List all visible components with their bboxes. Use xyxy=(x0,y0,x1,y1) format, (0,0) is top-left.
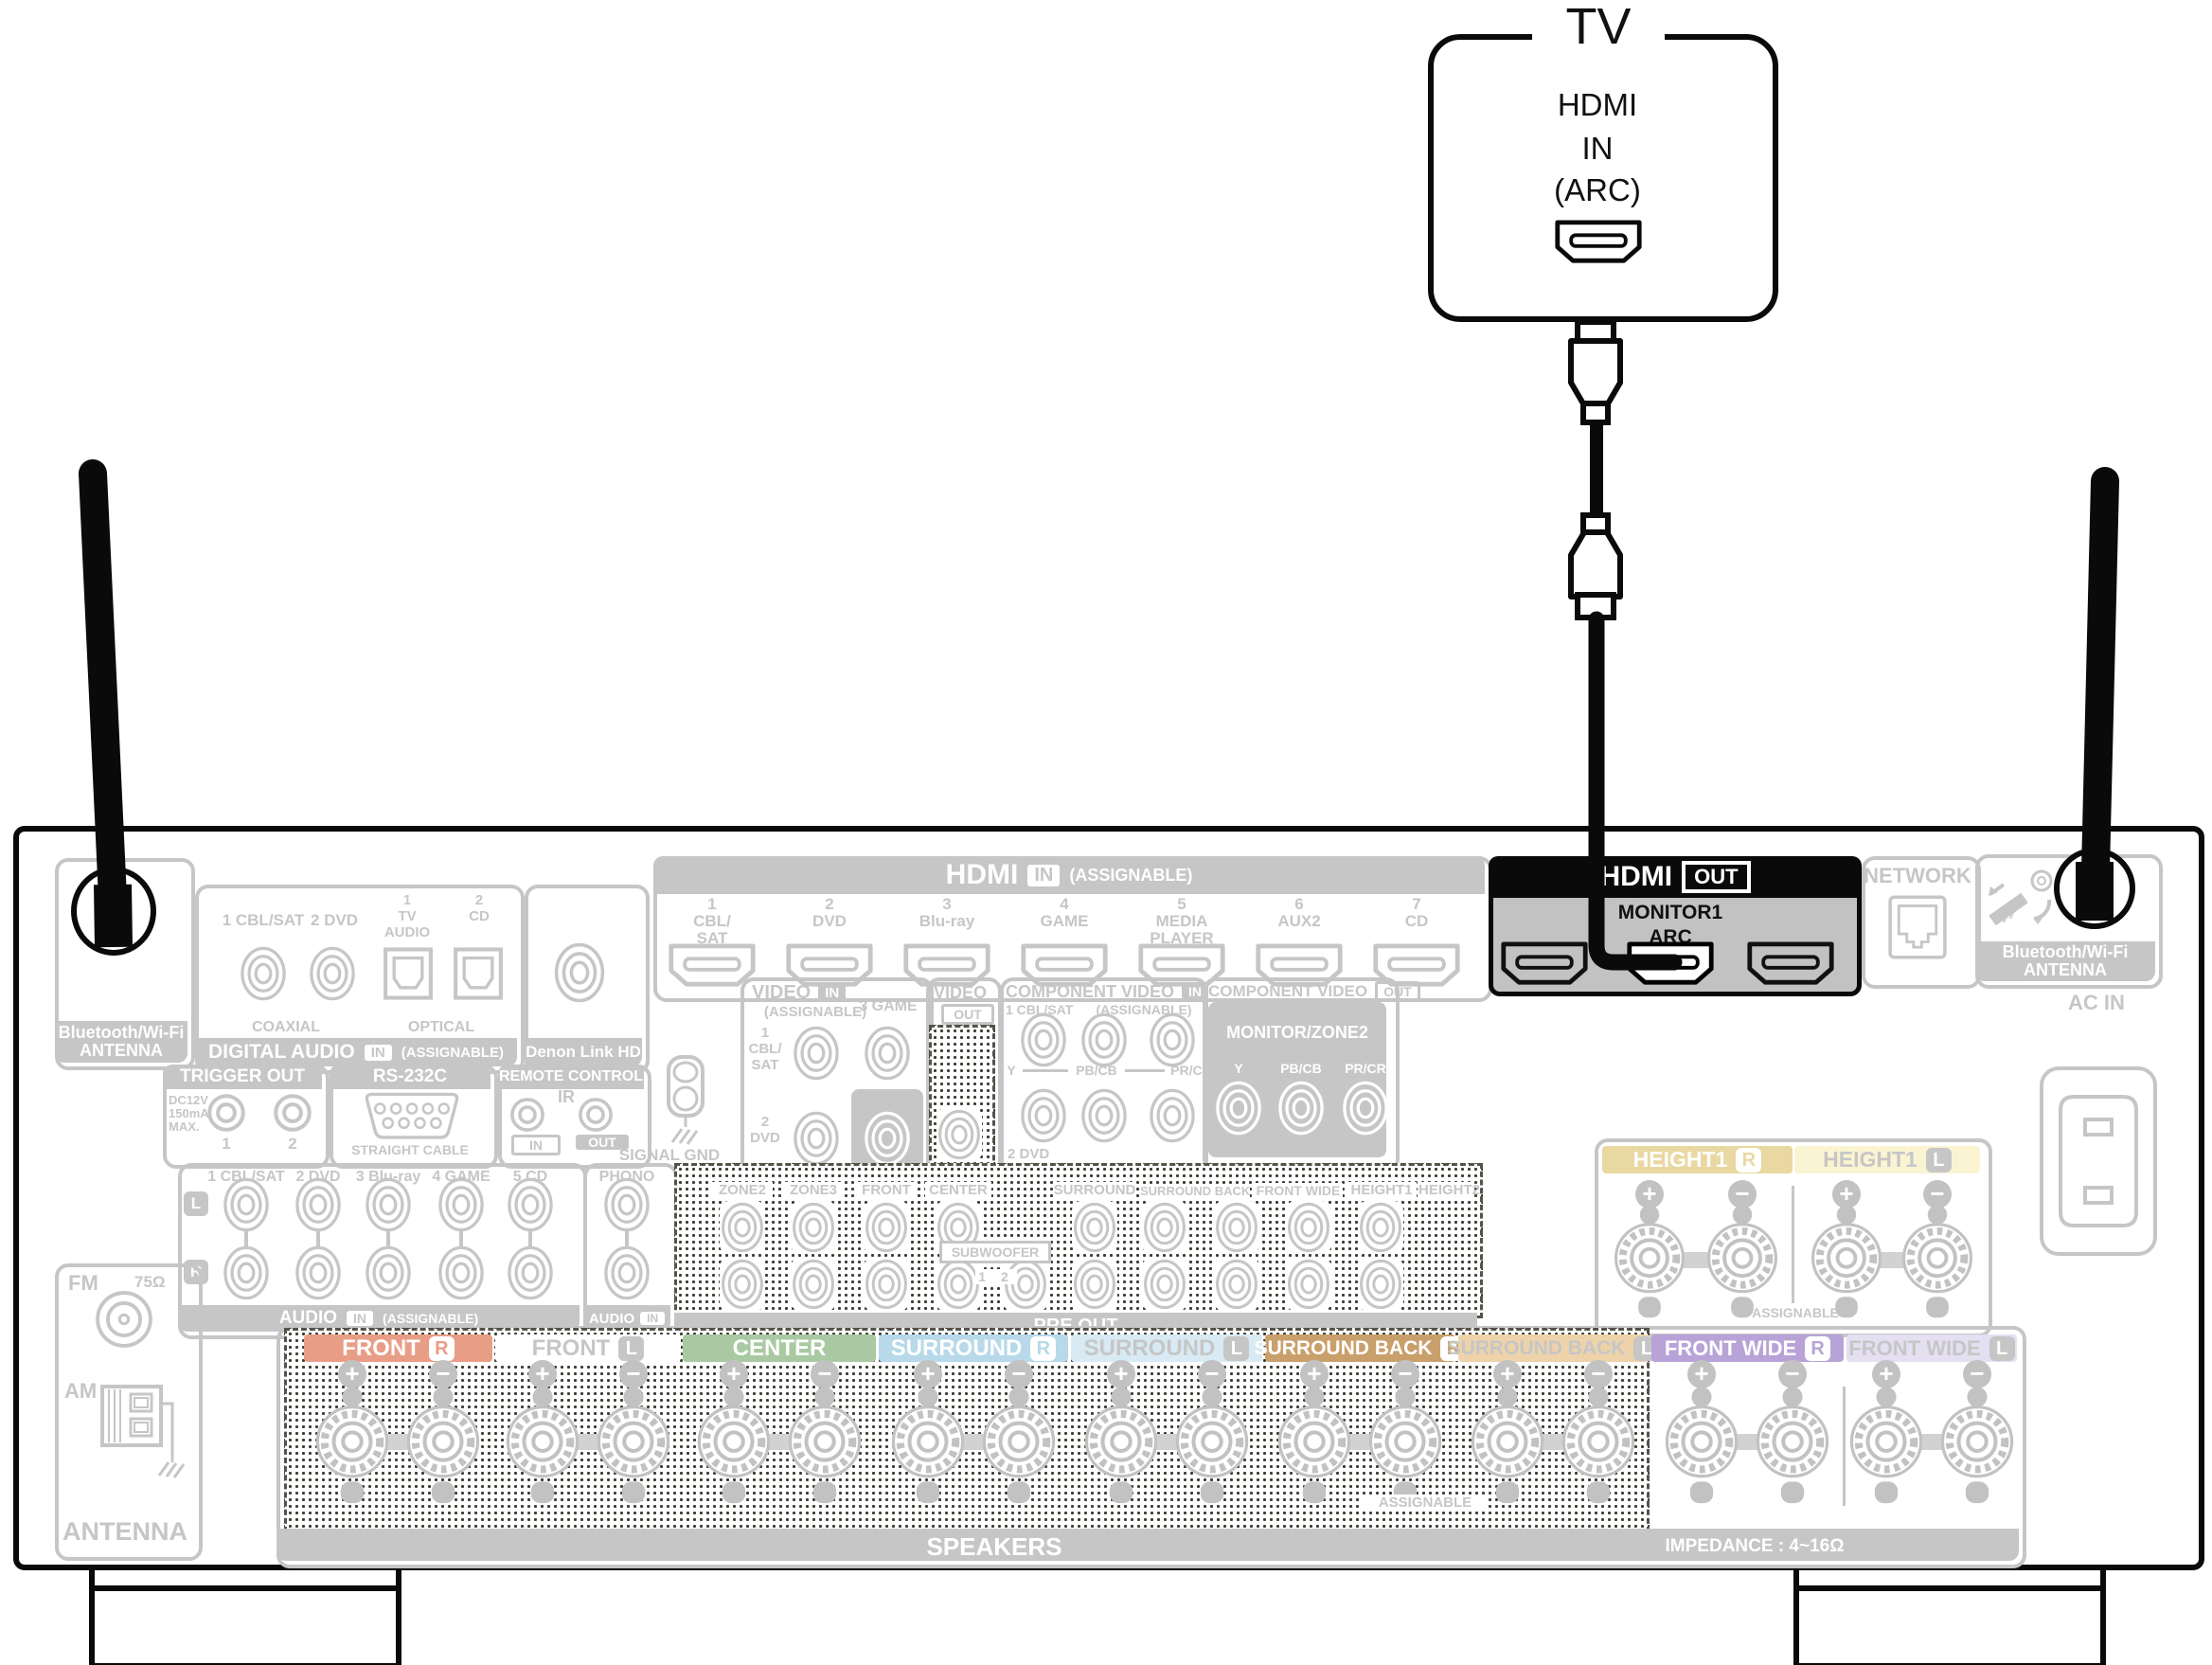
speaker-header-center: CENTER xyxy=(683,1334,876,1362)
bt-antenna-right-label: Bluetooth/Wi-Fi ANTENNA xyxy=(1975,941,2155,981)
audio-r-jack-3 xyxy=(364,1244,413,1301)
hdmi-out-badge: OUT xyxy=(1682,861,1750,893)
height1-r-label: HEIGHT1 xyxy=(1633,1147,1728,1173)
front-r-label: FRONT xyxy=(342,1335,420,1362)
video-dvd-label: 2 DVD xyxy=(740,1114,790,1146)
component-out-monitor-label: MONITOR/ZONE2 xyxy=(1212,1023,1382,1043)
optical-jack-tv-audio xyxy=(383,947,434,1000)
audio-r-jack-2 xyxy=(294,1244,343,1301)
coaxial-jack-dvd xyxy=(308,945,357,1002)
optical1-num: 1 xyxy=(381,892,434,908)
denon-link-jack xyxy=(552,941,607,1004)
video-jack-cbl-sat xyxy=(792,1025,841,1082)
hdmi-in-port3-label: 3 Blu-ray xyxy=(895,896,999,930)
hdmi-in-header: HDMI IN (ASSIGNABLE) xyxy=(653,856,1485,894)
height1-assignable: ASSIGNABLE xyxy=(1739,1305,1852,1320)
hdmi-in-port4-label: 4 GAME xyxy=(1012,896,1116,930)
video-j2-name: DVD xyxy=(740,1130,790,1146)
hdmi-out-monitor1-label: MONITOR1 xyxy=(1595,902,1746,924)
surround-back-r-post-minus xyxy=(1367,1385,1443,1508)
speaker-header-front-wide-r: FRONT WIDE R xyxy=(1651,1334,1844,1362)
rs232c-title: RS-232C xyxy=(373,1066,447,1087)
preout-jack-sw2 xyxy=(1003,1258,1048,1311)
height1-r-header: HEIGHT1 R xyxy=(1602,1146,1793,1173)
preout-jack-b5 xyxy=(1072,1258,1117,1311)
hdmi5-name1: MEDIA xyxy=(1130,913,1234,930)
front-r-post-plus xyxy=(314,1385,390,1508)
optical-jack-cd xyxy=(453,947,504,1000)
coaxial-jack-cbl-sat xyxy=(239,945,288,1002)
component-in-pr-2 xyxy=(1148,1087,1197,1144)
remote-in-jack xyxy=(509,1097,545,1133)
component-in-dash1 xyxy=(1023,1069,1068,1072)
receiver-foot-right xyxy=(1793,1565,2106,1665)
trigger-out-title: TRIGGER OUT xyxy=(180,1066,305,1087)
preout-jack-b1 xyxy=(720,1258,765,1311)
bt-antenna-left-line2: ANTENNA xyxy=(80,1042,163,1060)
optical1-line1: TV xyxy=(381,908,434,924)
rs232c-note: STRAIGHT CABLE xyxy=(335,1142,485,1157)
audio-l-jack-3 xyxy=(364,1176,413,1233)
speaker-header-surround-back-l: SURROUND BACK L xyxy=(1458,1334,1649,1362)
front-wide-r-label: FRONT WIDE xyxy=(1665,1336,1796,1361)
bt-antenna-right-line1: Bluetooth/Wi-Fi xyxy=(2003,943,2129,961)
am-terminal xyxy=(100,1381,187,1479)
hdmi-in-port1-label: 1 CBL/ SAT xyxy=(660,896,764,947)
receiver-foot-right-band xyxy=(1799,1585,2100,1591)
preout-jack-t7 xyxy=(1214,1201,1259,1254)
height1-r-post-plus xyxy=(1612,1203,1687,1322)
coaxial-label: COAXIAL xyxy=(231,1019,341,1036)
video-jack-monitor xyxy=(863,1110,912,1167)
remote-in-badge: IN xyxy=(511,1135,561,1155)
rs232c-header: RS-232C xyxy=(330,1065,491,1089)
optical1-line2: AUDIO xyxy=(381,924,434,940)
preout-subwoofer-nums: 1 2 xyxy=(975,1269,1017,1284)
audio-r-jack-5 xyxy=(506,1244,555,1301)
component-in-y-2 xyxy=(1019,1087,1068,1144)
surround-l-label: SURROUND xyxy=(1084,1335,1216,1362)
component-out-badge: OUT xyxy=(1375,981,1420,1002)
component-out-y-jack xyxy=(1214,1080,1263,1137)
trigger-jack-2 xyxy=(273,1093,312,1133)
tv-arc-label: (ARC) xyxy=(1428,172,1767,208)
tv-connection-diagram: TV HDMI IN (ARC) Bluetooth/Wi-Fi ANTENNA… xyxy=(0,0,2212,1665)
component-in-y-1 xyxy=(1019,1012,1068,1068)
tv-hdmi-in-label: IN xyxy=(1428,131,1767,167)
front-wide-l-post-plus xyxy=(1848,1385,1924,1508)
preout-label-height1: HEIGHT1 xyxy=(1347,1182,1417,1198)
remote-ir-label: IR xyxy=(553,1087,580,1107)
optical1-label: 1 TV AUDIO xyxy=(381,892,434,940)
phono-footer-badge: IN xyxy=(640,1312,665,1325)
hdmi-in-port5-label: 5 MEDIA PLAYER xyxy=(1130,896,1234,947)
optical2-name: CD xyxy=(453,908,506,924)
front-wide-r-post-minus xyxy=(1755,1385,1830,1508)
preout-jack-b9 xyxy=(1358,1258,1403,1311)
surround-r-post-plus xyxy=(890,1385,966,1508)
preout-jack-t2 xyxy=(791,1201,836,1254)
antenna-footer-label: ANTENNA xyxy=(57,1517,193,1547)
audio-l-jack-1 xyxy=(222,1176,271,1233)
preout-jack-b6 xyxy=(1142,1258,1187,1311)
hdmi4-num: 4 xyxy=(1012,896,1116,913)
bt-antenna-left-line1: Bluetooth/Wi-Fi xyxy=(59,1024,185,1042)
tv-label: TV xyxy=(1532,0,1665,55)
hdmi1-num: 1 xyxy=(660,896,764,913)
front-l-post-plus xyxy=(505,1385,580,1508)
hdmi6-num: 6 xyxy=(1247,896,1351,913)
audio-l-jack-5 xyxy=(506,1176,555,1233)
hdmi-in-assignable: (ASSIGNABLE) xyxy=(1069,866,1192,886)
denon-link-footer: Denon Link HD xyxy=(525,1038,642,1066)
hdmi-out-port-left xyxy=(1499,941,1590,987)
preout-jack-t5 xyxy=(1072,1201,1117,1254)
component-in-header: COMPONENT VIDEO IN xyxy=(1006,981,1208,1002)
hdmi-in-title: HDMI xyxy=(946,859,1019,891)
bt-antenna-right-line2: ANTENNA xyxy=(2024,961,2107,979)
hdmi-out-header: HDMI OUT xyxy=(1489,856,1862,898)
ac-in-label: AC IN xyxy=(2043,991,2150,1015)
hdmi-in-badge: IN xyxy=(1027,865,1060,886)
hdmi3-name1: Blu-ray xyxy=(895,913,999,930)
video-cblsat-label: 1 CBL/ SAT xyxy=(740,1025,790,1073)
component-in-pb-2 xyxy=(1079,1087,1129,1144)
surround-back-l-post-plus xyxy=(1470,1385,1545,1508)
receiver-foot-left xyxy=(89,1565,401,1665)
hdmi7-num: 7 xyxy=(1365,896,1469,913)
video-out-title: VIDEO xyxy=(928,983,992,1003)
preout-jack-b4 xyxy=(936,1258,981,1311)
hdmi7-name1: CD xyxy=(1365,913,1469,930)
audio-footer-assignable: (ASSIGNABLE) xyxy=(383,1311,478,1326)
bt-antenna-left-label: Bluetooth/Wi-Fi ANTENNA xyxy=(55,1021,187,1063)
preout-label-surround: SURROUND xyxy=(1053,1182,1136,1198)
preout-jack-b8 xyxy=(1286,1258,1331,1311)
hdmi4-name1: GAME xyxy=(1012,913,1116,930)
height1-l-badge: L xyxy=(1926,1148,1952,1173)
component-out-pb-jack xyxy=(1276,1080,1326,1137)
surround-back-r-label: SURROUND BACK xyxy=(1255,1337,1433,1360)
phono-r-jack xyxy=(602,1244,651,1301)
surround-back-r-post-plus xyxy=(1276,1385,1352,1508)
hdmi3-num: 3 xyxy=(895,896,999,913)
video-j1-l2: SAT xyxy=(740,1057,790,1073)
rs232c-connector xyxy=(360,1091,464,1142)
height1-l-label: HEIGHT1 xyxy=(1823,1147,1918,1173)
hdmi1-name1: CBL/ xyxy=(660,913,764,930)
video-game-label: 3 GAME xyxy=(856,998,920,1015)
preout-jack-t8 xyxy=(1286,1201,1331,1254)
component-in-pb-1 xyxy=(1079,1012,1129,1068)
preout-jack-t9 xyxy=(1358,1201,1403,1254)
hdmi2-num: 2 xyxy=(777,896,882,913)
front-r-badge: R xyxy=(429,1336,455,1361)
preout-jack-b2 xyxy=(791,1258,836,1311)
front-wide-l-post-minus xyxy=(1939,1385,2015,1508)
speaker-header-surround-r: SURROUND R xyxy=(879,1334,1068,1362)
front-wide-r-post-plus xyxy=(1664,1385,1739,1508)
network-rj45-jack xyxy=(1888,894,1947,960)
hdmi-out-port-right xyxy=(1745,941,1836,987)
video-jack-zone2 xyxy=(937,1108,982,1161)
trigger-jack2-num: 2 xyxy=(284,1135,301,1154)
fm-ohm-label: 75Ω xyxy=(134,1273,180,1292)
component-in-source2: 2 DVD xyxy=(1008,1146,1074,1162)
trigger-jack-1 xyxy=(206,1093,246,1133)
speaker-header-front-r: FRONT R xyxy=(304,1334,492,1362)
component-out-pbcb-label: PB/CB xyxy=(1275,1061,1328,1076)
component-in-dash2 xyxy=(1125,1069,1165,1072)
preout-jack-t6 xyxy=(1142,1201,1187,1254)
video-j1-num: 1 xyxy=(740,1025,790,1041)
surround-r-badge: R xyxy=(1030,1336,1056,1361)
speaker-header-surround-back-r: SURROUND BACK R xyxy=(1265,1334,1455,1362)
digital-audio-coax2-label: 2 DVD xyxy=(301,911,367,930)
height1-l-post-minus xyxy=(1900,1203,1975,1322)
center-label: CENTER xyxy=(733,1335,827,1362)
height1-r-badge: R xyxy=(1736,1148,1761,1173)
surround-back-l-label: SURROUND BACK xyxy=(1448,1337,1626,1360)
surround-back-l-post-minus xyxy=(1561,1385,1636,1508)
video-j2-num: 2 xyxy=(740,1114,790,1130)
trigger-jack1-num: 1 xyxy=(218,1135,235,1154)
component-out-y-label: Y xyxy=(1229,1061,1248,1076)
optical-label: OPTICAL xyxy=(386,1019,496,1036)
center-post-minus xyxy=(787,1385,863,1508)
preout-label-surround-back: SURROUND BACK xyxy=(1140,1184,1250,1198)
surround-r-post-minus xyxy=(981,1385,1057,1508)
preout-label-height2: HEIGHT2 xyxy=(1418,1182,1472,1198)
audio-left-badge: L xyxy=(184,1191,208,1216)
audio-footer-badge: IN xyxy=(347,1311,373,1326)
audio-r-jack-4 xyxy=(437,1244,486,1301)
front-wide-l-badge: L xyxy=(1989,1336,2015,1361)
optical2-label: 2 CD xyxy=(453,892,506,924)
ac-inlet xyxy=(2038,1065,2159,1258)
center-post-plus xyxy=(696,1385,772,1508)
fm-coax-jack xyxy=(95,1290,153,1349)
video-j1-l1: CBL/ xyxy=(740,1041,790,1057)
front-wide-divider xyxy=(1843,1387,1846,1506)
phono-l-jack xyxy=(602,1176,651,1233)
component-out-title: COMPONENT VIDEO xyxy=(1208,982,1367,1001)
digital-audio-in-badge: IN xyxy=(365,1045,392,1061)
preout-label-zone2: ZONE2 xyxy=(712,1182,773,1198)
component-out-prcr-label: PR/CR xyxy=(1339,1061,1392,1076)
preout-label-front-wide: FRONT WIDE xyxy=(1254,1183,1343,1198)
digital-audio-footer-name: DIGITAL AUDIO xyxy=(208,1041,355,1064)
receiver-foot-left-band xyxy=(95,1585,396,1591)
surround-l-post-minus xyxy=(1174,1385,1250,1508)
antenna-mount-illustration xyxy=(1985,862,2064,938)
audio-l-jack-4 xyxy=(437,1176,486,1233)
preout-label-center: CENTER xyxy=(925,1182,991,1198)
audio-r-jack-1 xyxy=(222,1244,271,1301)
digital-audio-footer: DIGITAL AUDIO IN (ASSIGNABLE) xyxy=(195,1038,517,1066)
video-jack-dvd xyxy=(792,1110,841,1167)
front-l-label: FRONT xyxy=(532,1335,611,1362)
network-label: NETWORK xyxy=(1862,864,1973,888)
audio-l-jack-2 xyxy=(294,1176,343,1233)
surround-l-badge: L xyxy=(1223,1336,1249,1361)
surround-l-post-plus xyxy=(1083,1385,1159,1508)
tv-hdmi-port-icon xyxy=(1553,220,1644,265)
remote-out-jack xyxy=(578,1097,614,1133)
hdmi2-name1: DVD xyxy=(777,913,882,930)
tv-hdmi-label: HDMI xyxy=(1428,87,1767,123)
component-out-pr-jack xyxy=(1341,1080,1390,1137)
hdmi-out-title: HDMI xyxy=(1599,861,1672,893)
front-wide-r-badge: R xyxy=(1805,1336,1830,1361)
preout-label-zone3: ZONE3 xyxy=(783,1182,844,1198)
component-in-pbcb-label: PB/CB xyxy=(1070,1063,1123,1078)
speaker-header-front-l: FRONT L xyxy=(495,1334,681,1362)
denon-link-label: Denon Link HD xyxy=(526,1043,641,1062)
component-in-y-label: Y xyxy=(1002,1063,1021,1078)
hdmi-in-port6-label: 6 AUX2 xyxy=(1247,896,1351,930)
height1-l-header: HEIGHT1 L xyxy=(1794,1146,1980,1173)
video-in-title: VIDEO xyxy=(752,982,811,1004)
surround-r-label: SURROUND xyxy=(891,1335,1023,1362)
hdmi5-num: 5 xyxy=(1130,896,1234,913)
video-in-header: VIDEO IN xyxy=(752,981,846,1004)
preout-label-front: FRONT xyxy=(855,1182,918,1198)
trigger-out-header: TRIGGER OUT xyxy=(163,1065,322,1089)
preout-jack-t3 xyxy=(864,1201,909,1254)
phono-footer-name: AUDIO xyxy=(589,1311,634,1327)
speaker-header-front-wide-l: FRONT WIDE L xyxy=(1846,1334,2017,1362)
front-wide-l-label: FRONT WIDE xyxy=(1848,1336,1980,1361)
component-in-pr-1 xyxy=(1148,1012,1197,1068)
signal-gnd-label: SIGNAL GND xyxy=(615,1146,723,1165)
hdmi-in-port7-label: 7 CD xyxy=(1365,896,1469,930)
component-out-header: COMPONENT VIDEO OUT xyxy=(1208,981,1420,1002)
front-l-badge: L xyxy=(618,1336,644,1361)
preout-subwoofer-label: SUBWOOFER xyxy=(939,1241,1051,1263)
front-r-post-minus xyxy=(405,1385,481,1508)
video-in-badge: IN xyxy=(818,985,846,1001)
speaker-header-surround-l: SURROUND L xyxy=(1071,1334,1262,1362)
speakers-impedance-label: IMPEDANCE : 4~16Ω xyxy=(1646,1536,1864,1557)
hdmi-out-port-monitor1 xyxy=(1625,941,1716,987)
video-jack-game xyxy=(863,1025,912,1082)
front-l-post-minus xyxy=(596,1385,671,1508)
component-in-title: COMPONENT VIDEO xyxy=(1006,982,1174,1002)
video-out-badge: OUT xyxy=(941,1004,994,1025)
speakers-assignable: ASSIGNABLE xyxy=(1362,1495,1489,1511)
optical2-num: 2 xyxy=(453,892,506,908)
preout-jack-t1 xyxy=(720,1201,765,1254)
hdmi6-name1: AUX2 xyxy=(1247,913,1351,930)
remote-control-header: REMOTE CONTROL xyxy=(498,1065,644,1089)
remote-control-title: REMOTE CONTROL xyxy=(499,1068,643,1085)
preout-jack-b3 xyxy=(864,1258,909,1311)
digital-audio-assignable: (ASSIGNABLE) xyxy=(401,1045,504,1061)
speakers-footer-label: SPEAKERS xyxy=(900,1532,1089,1562)
height1-divider xyxy=(1792,1186,1794,1303)
signal-gnd-terminal xyxy=(663,1055,708,1146)
preout-jack-b7 xyxy=(1214,1258,1259,1311)
hdmi-in-port2-label: 2 DVD xyxy=(777,896,882,930)
